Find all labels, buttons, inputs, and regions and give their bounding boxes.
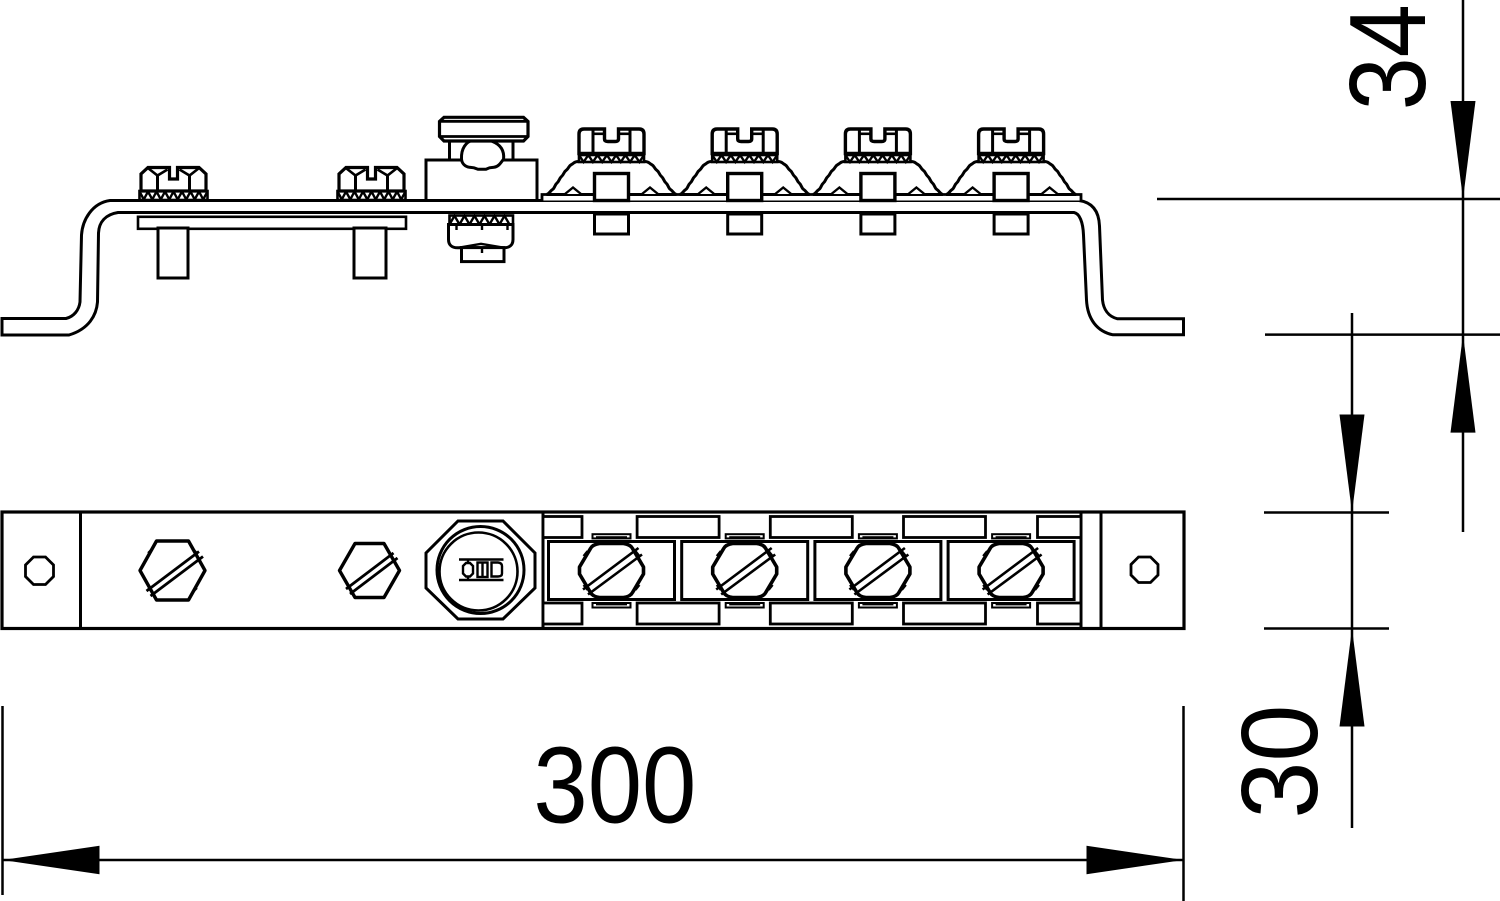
svg-text:30: 30: [1219, 705, 1341, 819]
svg-text:34: 34: [1327, 4, 1449, 110]
svg-text:300: 300: [533, 725, 696, 847]
